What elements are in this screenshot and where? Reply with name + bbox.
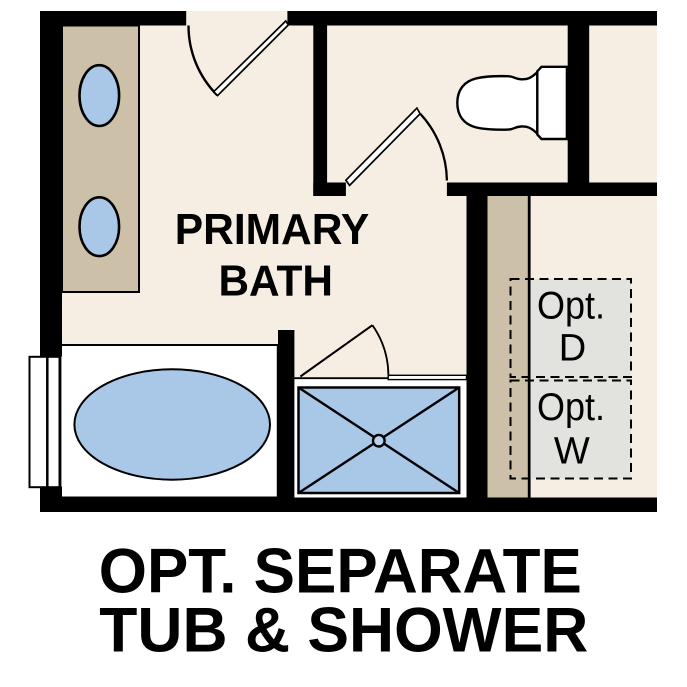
svg-text:TUB & SHOWER: TUB & SHOWER (99, 596, 588, 666)
svg-text:Opt.: Opt. (537, 285, 605, 328)
svg-text:W: W (554, 430, 590, 472)
svg-text:Opt.: Opt. (537, 386, 605, 429)
svg-text:PRIMARY: PRIMARY (175, 206, 370, 254)
svg-text:D: D (559, 327, 586, 369)
svg-text:BATH: BATH (218, 258, 333, 306)
